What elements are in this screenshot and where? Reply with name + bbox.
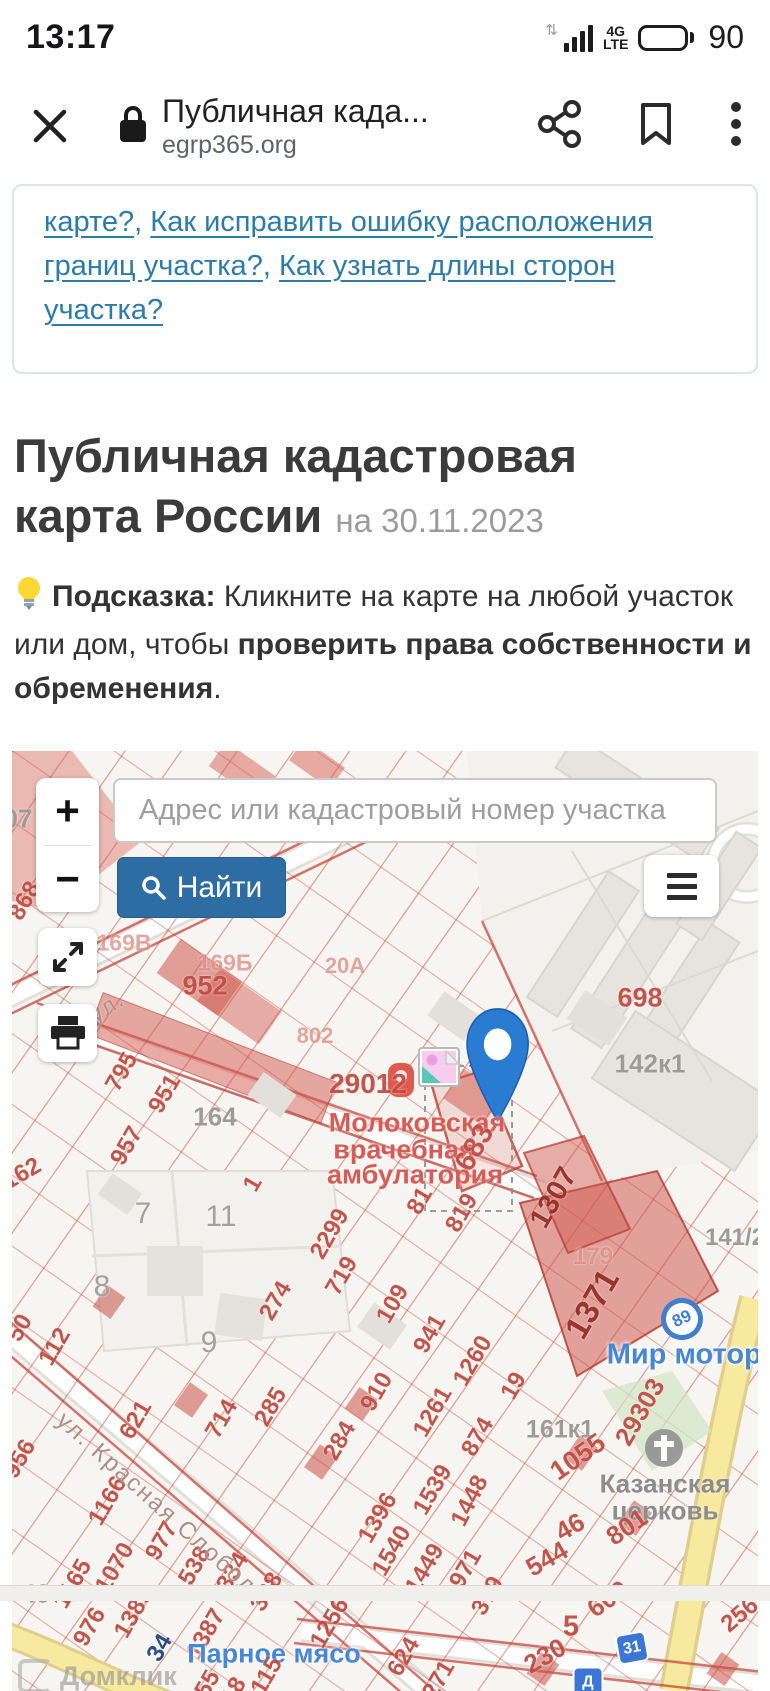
expand-icon (51, 940, 85, 974)
map-layers-menu-button[interactable] (644, 855, 719, 917)
faq-links-box: карте?, Как исправить ошибку расположени… (12, 184, 758, 374)
find-button-label: Найти (177, 871, 263, 905)
network-type-badge: 4GLTE (603, 25, 628, 51)
lock-icon (118, 104, 148, 149)
hint-text-part: . (213, 672, 221, 705)
kebab-menu-icon (730, 100, 742, 148)
signal-strength-icon (564, 24, 593, 52)
data-activity-icon: ⇅ (545, 26, 558, 36)
map-date: на 30.11.2023 (335, 502, 543, 539)
zoom-out-button[interactable]: − (36, 846, 99, 913)
share-icon (538, 100, 582, 148)
page-url: egrp365.org (162, 130, 429, 160)
lightbulb-icon (14, 576, 44, 623)
share-button[interactable] (538, 100, 582, 153)
bookmark-button[interactable] (638, 101, 674, 152)
print-button[interactable] (38, 1004, 97, 1062)
hint-paragraph: Подсказка: Кликните на карте на любой уч… (14, 575, 756, 711)
hamburger-icon (667, 873, 697, 878)
fullscreen-button[interactable] (38, 928, 97, 986)
bookmark-icon (638, 101, 674, 147)
find-button[interactable]: Найти (117, 857, 286, 918)
faq-links: карте?, Как исправить ошибку расположени… (44, 218, 653, 323)
battery-percent: 90 (708, 19, 744, 56)
faq-link[interactable]: карте? (44, 206, 134, 238)
browser-menu-button[interactable] (730, 100, 742, 153)
cadastral-map[interactable]: 07868169В169Б95220А80229012Молоковскаявр… (12, 751, 758, 1691)
page-info[interactable]: Публичная када... egrp365.org (118, 92, 429, 160)
zoom-control: + − (36, 778, 99, 912)
clock: 13:17 (26, 18, 115, 57)
page-bottom-strip (0, 1585, 770, 1601)
close-icon (28, 104, 72, 148)
status-bar: 13:17 ⇅ 4GLTE 90 (0, 0, 770, 75)
hint-text: Подсказка: Кликните на карте на любой уч… (14, 580, 752, 705)
search-icon (141, 875, 167, 901)
poi-marker-icon (388, 1063, 414, 1097)
search-input[interactable] (113, 778, 717, 843)
close-tab-button[interactable] (28, 104, 72, 148)
page-title: Публичная кадастровая карта России на 30… (14, 426, 714, 551)
zoom-in-button[interactable]: + (36, 778, 99, 845)
battery-icon (638, 25, 694, 51)
page-title-truncated: Публичная када... (162, 92, 429, 130)
church-icon (645, 1429, 683, 1467)
printer-icon (50, 1016, 86, 1050)
browser-toolbar: Публичная када... egrp365.org (0, 75, 770, 177)
photo-icon (419, 1048, 459, 1086)
hint-text-part: Подсказка: (52, 580, 216, 613)
